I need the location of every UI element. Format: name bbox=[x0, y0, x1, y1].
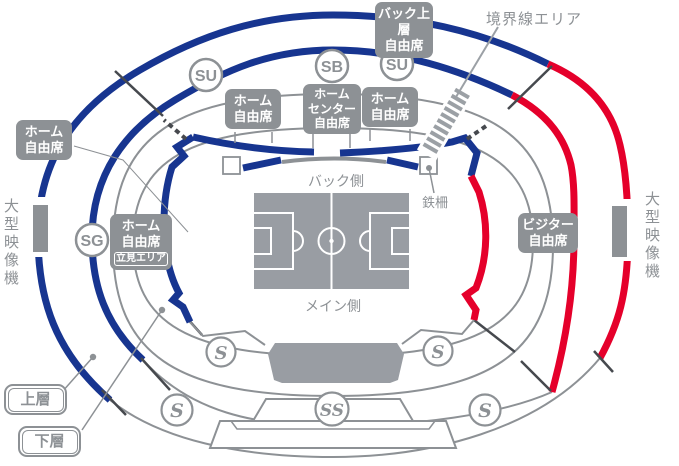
divider-top-left bbox=[115, 71, 163, 116]
section-label-home-center: ホーム センター 自由席 bbox=[303, 84, 361, 134]
standing-area-badge: 立見エリア bbox=[114, 252, 168, 266]
fence-text: 鉄柵 bbox=[422, 195, 448, 210]
fence-blue-stub-left bbox=[243, 160, 281, 168]
badge-ss-label: SS bbox=[320, 401, 344, 421]
stadium-seating-map: SU SB SU SG S S S SS bbox=[0, 0, 679, 466]
section-label-home-left: ホーム 自由席 bbox=[16, 120, 72, 160]
section-label-line: 自由席 bbox=[18, 140, 70, 156]
upper-tier-box: 上層 bbox=[4, 384, 67, 415]
back-side-text: バック側 bbox=[308, 173, 364, 189]
badge-s-bottom-left: S bbox=[162, 395, 193, 426]
pitch-center-spot bbox=[329, 239, 333, 243]
section-label-line: 自由席 bbox=[305, 116, 359, 131]
badge-s-mid-right: S bbox=[424, 337, 453, 366]
boundary-red-right-side bbox=[466, 176, 486, 320]
section-label-line: 自由席 bbox=[520, 233, 576, 249]
boundary-blue-top-right bbox=[340, 138, 477, 176]
section-label-line: ホーム bbox=[305, 87, 359, 102]
section-label-line: 自由席 bbox=[227, 109, 279, 125]
section-label-home-standing: ホーム 自由席 立見エリア bbox=[110, 214, 172, 270]
section-label-line: センター bbox=[305, 102, 359, 117]
badge-s-mid-left-label: S bbox=[215, 343, 228, 364]
section-label-line: ホーム bbox=[112, 218, 170, 234]
section-label-line: ホーム bbox=[364, 91, 416, 107]
boundary-hatch-band bbox=[417, 85, 473, 160]
boundary-blue-top-left bbox=[193, 137, 314, 152]
upper-tier-label: 上層 bbox=[8, 388, 64, 412]
badge-sb: SB bbox=[316, 50, 348, 82]
badge-su-right-label: SU bbox=[386, 57, 408, 74]
boundary-dashed-right bbox=[467, 124, 489, 139]
badge-s-mid-right-label: S bbox=[432, 342, 445, 363]
screen-right-text: 大型映像機 bbox=[644, 191, 659, 281]
section-label-line: 自由席 bbox=[112, 234, 170, 250]
section-label-line: バック上層 bbox=[377, 6, 431, 38]
fence-blue-stub-right bbox=[387, 160, 418, 167]
section-label-back-upper: バック上層 自由席 bbox=[375, 2, 433, 58]
boundary-area-text: 境界線エリア bbox=[486, 8, 582, 29]
section-label-home-mid-right: ホーム 自由席 bbox=[362, 87, 418, 127]
badge-s-bottom-right-label: S bbox=[478, 400, 492, 422]
lower-tier-label: 下層 bbox=[22, 430, 78, 454]
badge-sg: SG bbox=[76, 224, 108, 256]
badge-sg-label: SG bbox=[80, 233, 103, 250]
divider-bottom-right-inner bbox=[521, 361, 551, 391]
fence-bar bbox=[282, 159, 386, 163]
upper-tier-leader-dot bbox=[90, 354, 96, 360]
screen-right-icon bbox=[612, 206, 627, 257]
section-label-line: ビジター bbox=[520, 217, 576, 233]
badge-ss: SS bbox=[316, 393, 349, 426]
badge-s-mid-left: S bbox=[207, 338, 236, 367]
screen-left-text: 大型映像機 bbox=[3, 198, 18, 288]
fence-end-square-left bbox=[223, 157, 240, 174]
section-label-line: 自由席 bbox=[377, 38, 431, 54]
screen-left-icon bbox=[33, 205, 48, 252]
pitch bbox=[253, 192, 410, 290]
section-label-line: 自由席 bbox=[364, 107, 416, 123]
badge-s-bottom-left-label: S bbox=[170, 400, 184, 422]
section-label-line: ホーム bbox=[18, 124, 70, 140]
badge-su-left: SU bbox=[190, 59, 222, 91]
section-label-visitor: ビジター 自由席 bbox=[518, 213, 578, 253]
badge-su-left-label: SU bbox=[195, 68, 217, 85]
stand-center-block bbox=[268, 343, 404, 383]
badge-s-bottom-right: S bbox=[470, 395, 501, 426]
section-label-home-mid-left: ホーム 自由席 bbox=[225, 89, 281, 129]
lower-tier-box: 下層 bbox=[18, 426, 81, 457]
badge-sb-label: SB bbox=[321, 59, 343, 76]
section-label-line: ホーム bbox=[227, 93, 279, 109]
lower-tier-leader-dot bbox=[159, 307, 165, 313]
main-side-text: メイン側 bbox=[305, 298, 361, 314]
